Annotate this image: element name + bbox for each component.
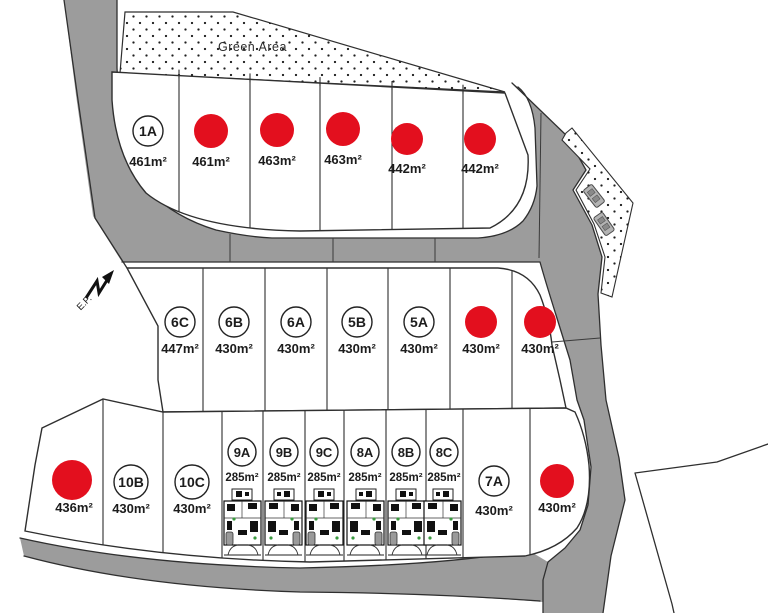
sold-marker-icon <box>464 123 496 155</box>
plot-area-label: 447m² <box>161 341 199 356</box>
sold-marker-icon <box>465 306 497 338</box>
plot-id-badge: 10C <box>179 474 205 490</box>
sold-marker-icon <box>52 460 92 500</box>
plot-area-label: 285m² <box>427 472 460 484</box>
block-middle <box>127 268 566 412</box>
plot-area-label: 430m² <box>277 341 315 356</box>
sold-marker-icon <box>194 114 228 148</box>
plot-area-label: 463m² <box>258 153 296 168</box>
plot-id-badge: 6C <box>171 314 189 330</box>
plot-id-badge: 6B <box>225 314 243 330</box>
plot-id-badge: 9C <box>316 445 333 460</box>
plot-id-badge: 5B <box>348 314 366 330</box>
plot-id-badge: 8A <box>357 445 374 460</box>
sold-marker-icon <box>391 123 423 155</box>
site-plan-drawing: Green Area <box>0 0 768 613</box>
property-boundary-line <box>635 444 768 613</box>
plot-10c[interactable]: 10C 430m² <box>173 465 211 516</box>
site-plan: Green Area <box>0 0 768 613</box>
plot-area-label: 285m² <box>307 472 340 484</box>
plot-id-badge: 7A <box>485 473 503 489</box>
plot-area-label: 285m² <box>348 472 381 484</box>
sold-marker-icon <box>260 113 294 147</box>
plot-id-badge: 8C <box>436 445 453 460</box>
plot-area-label: 436m² <box>55 500 93 515</box>
plot-10b[interactable]: 10B 430m² <box>112 465 150 516</box>
plot-area-label: 430m² <box>112 501 150 516</box>
plot-area-label: 442m² <box>388 161 426 176</box>
plot-area-label: 430m² <box>215 341 253 356</box>
sold-marker-icon <box>540 464 574 498</box>
plot-area-label: 430m² <box>538 500 576 515</box>
plot-id-badge: 10B <box>118 474 144 490</box>
plot-area-label: 430m² <box>400 341 438 356</box>
plot-area-label: 285m² <box>225 472 258 484</box>
plot-id-badge: 9A <box>234 445 251 460</box>
plot-area-label: 285m² <box>267 472 300 484</box>
plot-id-badge: 9B <box>276 445 293 460</box>
plot-id-badge: 8B <box>398 445 415 460</box>
plot-area-label: 430m² <box>338 341 376 356</box>
plot-id-badge: 5A <box>410 314 428 330</box>
sold-marker-icon <box>326 112 360 146</box>
plot-area-label: 430m² <box>173 501 211 516</box>
plot-area-label: 463m² <box>324 152 362 167</box>
plot-area-label: 461m² <box>192 154 230 169</box>
plot-sold-middle-2[interactable]: 430m² <box>521 306 559 356</box>
plot-sold-bottom-1[interactable]: 436m² <box>52 460 93 515</box>
sold-marker-icon <box>524 306 556 338</box>
plot-id-badge: 1A <box>139 123 157 139</box>
plot-area-label: 285m² <box>389 472 422 484</box>
plot-area-label: 442m² <box>461 161 499 176</box>
ep-label: E.P. <box>75 293 95 313</box>
plot-id-badge: 6A <box>287 314 305 330</box>
green-area-label: Green Area <box>218 40 287 54</box>
plot-area-label: 461m² <box>129 154 167 169</box>
plot-sold-bottom-2[interactable]: 430m² <box>538 464 576 515</box>
plot-area-label: 430m² <box>462 341 500 356</box>
north-arrow-icon <box>86 270 114 298</box>
plot-area-label: 430m² <box>521 341 559 356</box>
plot-area-label: 430m² <box>475 503 513 518</box>
